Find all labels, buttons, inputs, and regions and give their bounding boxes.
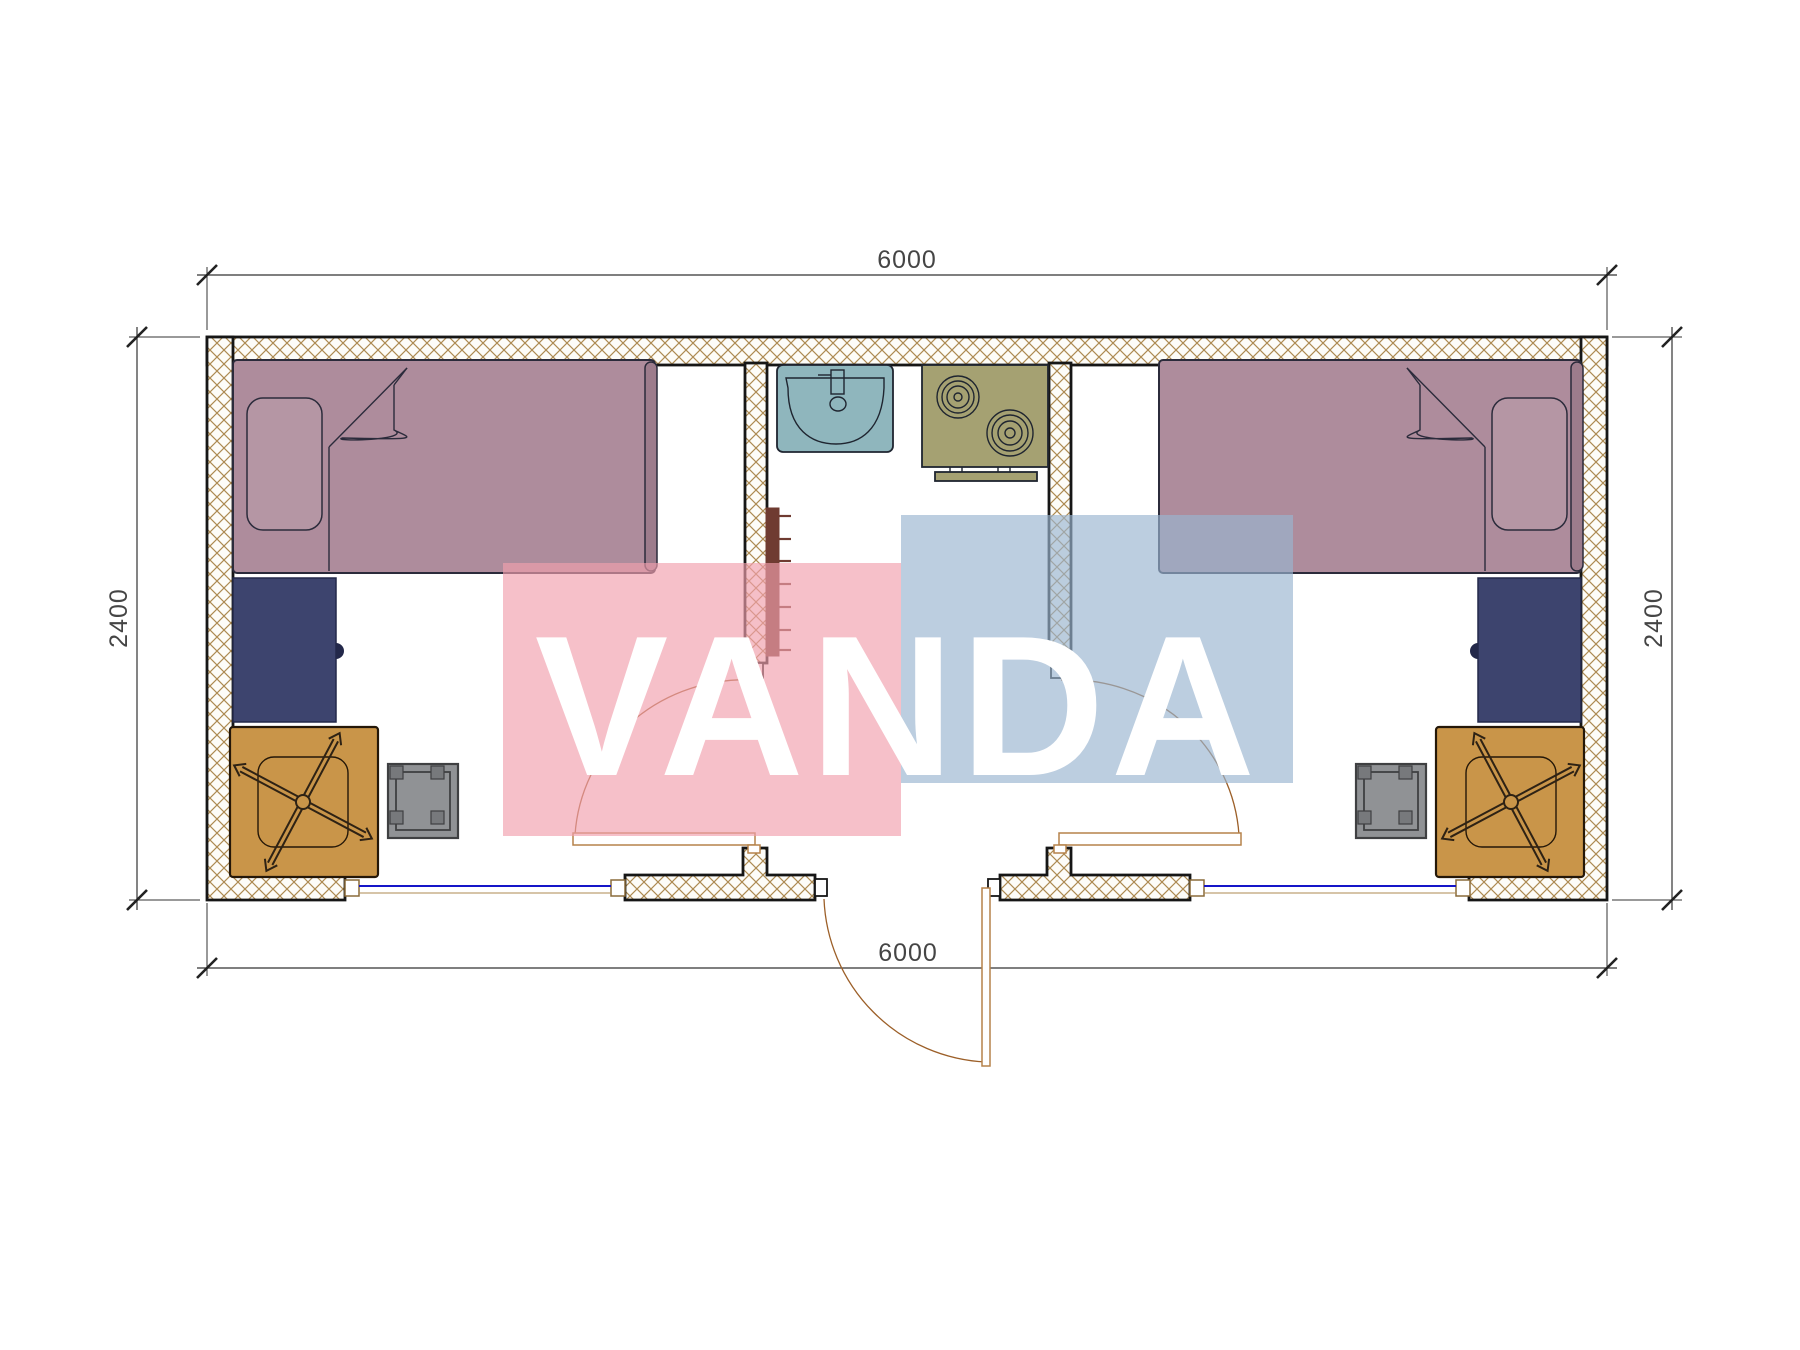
desk-right	[1470, 578, 1581, 722]
window-jamb	[345, 880, 359, 896]
stool-right	[1356, 764, 1426, 838]
desk-left	[233, 578, 344, 722]
wall-bottom-segment-left	[625, 848, 815, 900]
door-leaf	[982, 888, 990, 1066]
dimension-left-label: 2400	[105, 588, 133, 648]
door-exterior	[824, 888, 990, 1066]
dimension-top-label: 6000	[877, 246, 937, 274]
window-jamb	[1456, 880, 1470, 896]
bed-left	[233, 360, 657, 573]
wall-bottom-segment-right	[1000, 848, 1190, 900]
dimension-left: 2400	[105, 327, 200, 910]
sink	[777, 365, 893, 452]
stove-base	[935, 472, 1037, 481]
dimension-right-label: 2400	[1640, 588, 1668, 648]
watermark: VANDA	[503, 515, 1293, 836]
dimension-right: 2400	[1612, 327, 1682, 910]
desk-knob	[336, 643, 344, 659]
floor-plan-page: 6000 6000 2400 2400	[0, 0, 1800, 1350]
window-left	[345, 880, 625, 896]
window-jamb	[611, 880, 625, 896]
door-leaf	[1059, 833, 1241, 845]
door-jamb-left	[815, 879, 827, 896]
table-right	[1436, 727, 1584, 877]
stool-left	[388, 764, 458, 838]
pillow	[1492, 398, 1567, 530]
dimension-bottom: 6000	[197, 903, 1617, 978]
table-left	[230, 727, 378, 877]
watermark-text: VANDA	[535, 595, 1261, 818]
bed-foot-rail	[645, 362, 657, 571]
window-jamb	[1190, 880, 1204, 896]
dimension-top: 6000	[197, 246, 1617, 330]
floor-plan-canvas: 6000 6000 2400 2400	[0, 0, 1800, 1350]
bed-foot-rail	[1571, 362, 1583, 571]
desk-knob	[1470, 643, 1478, 659]
window-right	[1190, 880, 1470, 896]
stove	[922, 365, 1048, 481]
pillow	[247, 398, 322, 530]
dimension-bottom-label: 6000	[878, 939, 938, 967]
